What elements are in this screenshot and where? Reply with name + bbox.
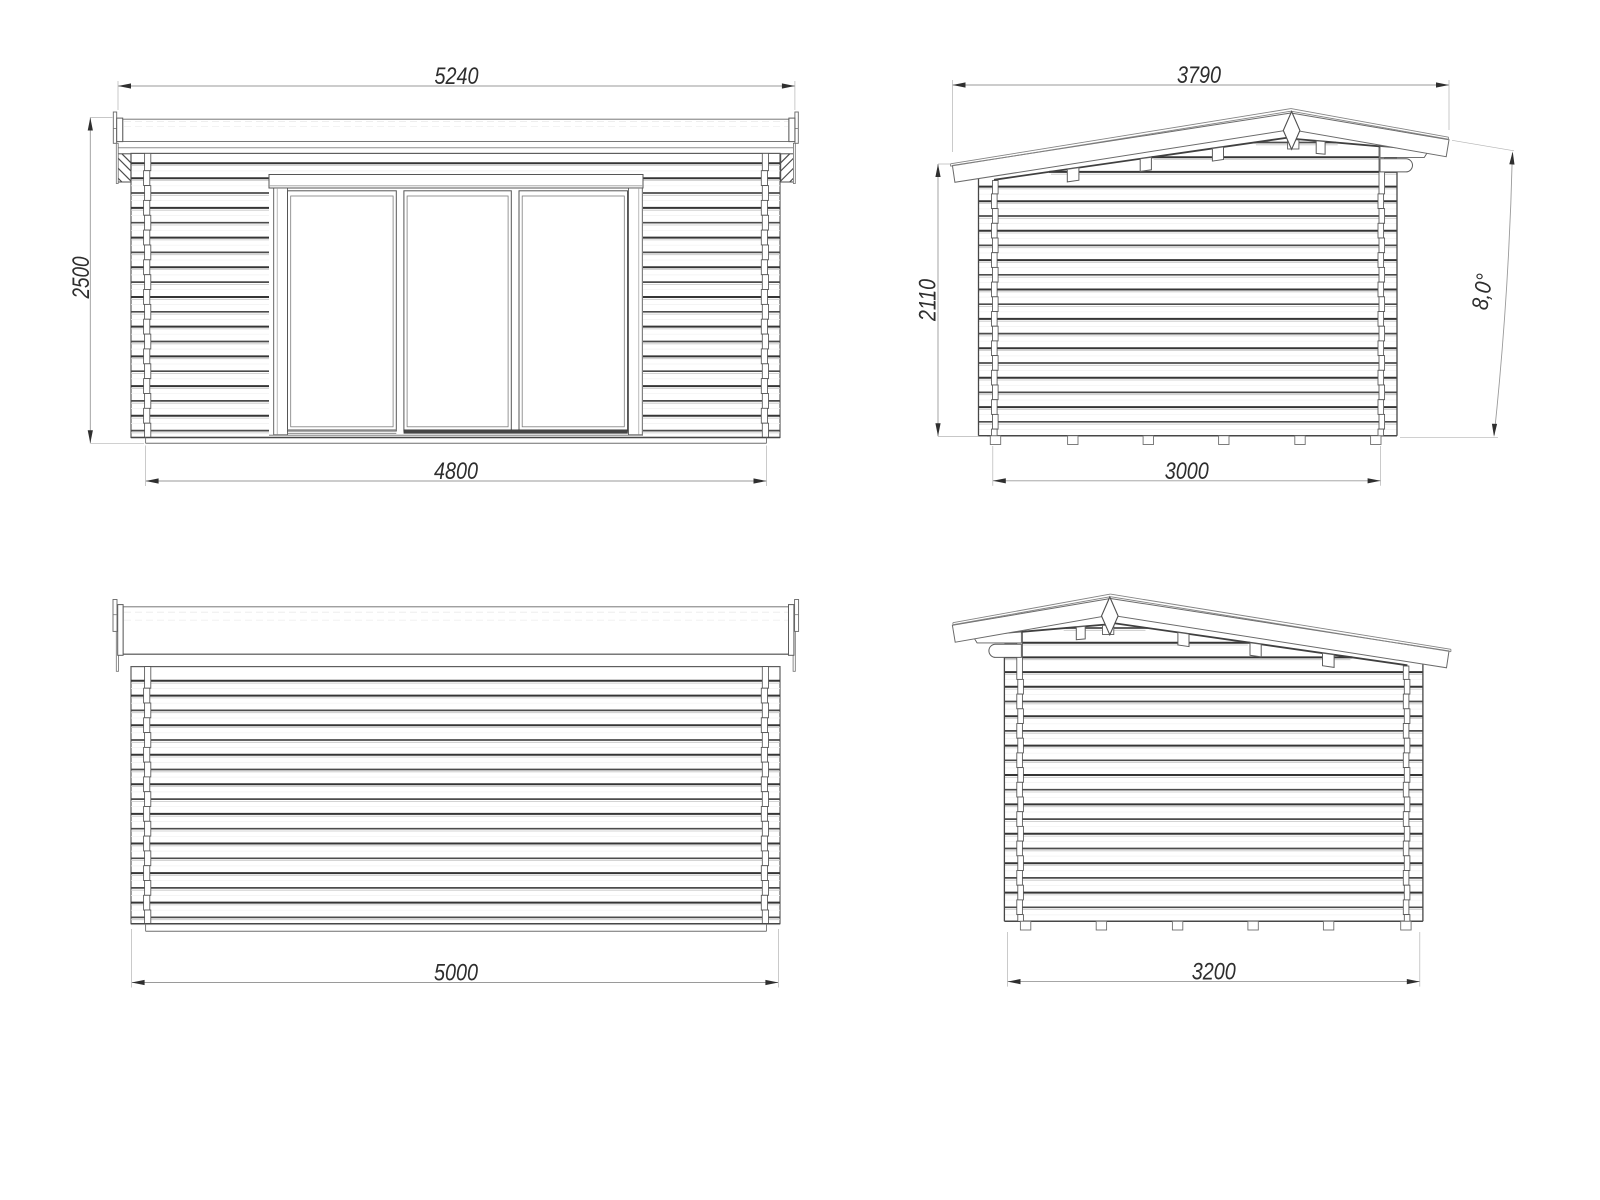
- svg-text:8,0°: 8,0°: [1466, 272, 1497, 312]
- svg-text:5000: 5000: [434, 960, 479, 987]
- svg-text:2110: 2110: [915, 278, 942, 321]
- svg-text:3200: 3200: [1192, 959, 1237, 986]
- svg-text:3790: 3790: [1177, 62, 1222, 89]
- svg-text:2500: 2500: [68, 256, 95, 299]
- svg-text:5240: 5240: [435, 63, 480, 90]
- svg-text:4800: 4800: [434, 458, 479, 485]
- svg-text:3000: 3000: [1165, 458, 1210, 485]
